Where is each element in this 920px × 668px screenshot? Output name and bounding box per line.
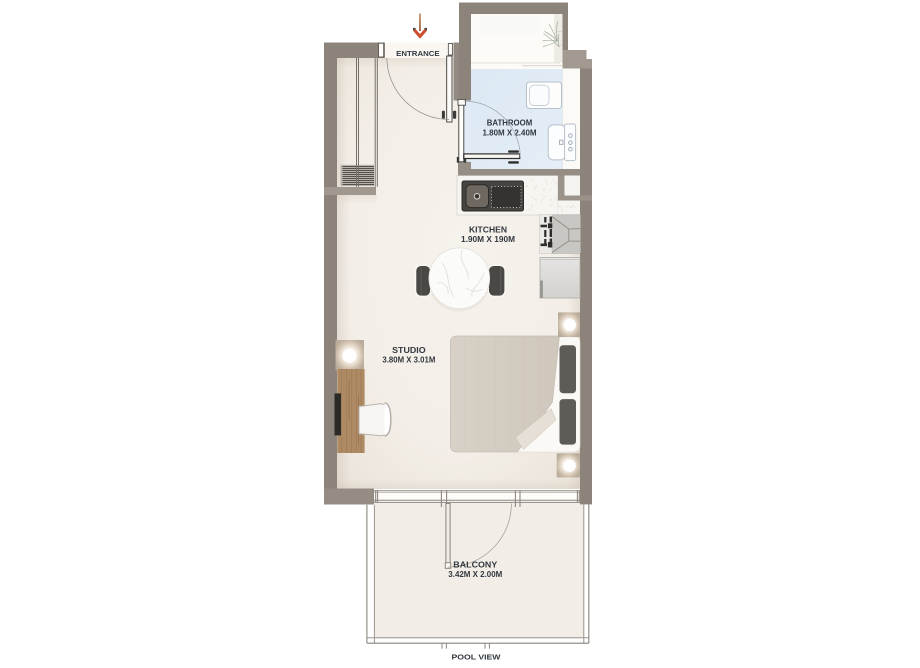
svg-text:POOL VIEW: POOL VIEW <box>452 653 502 662</box>
svg-text:BALCONY: BALCONY <box>453 560 497 570</box>
svg-text:3.80M X 3.01M: 3.80M X 3.01M <box>382 356 435 365</box>
svg-text:ENTRANCE: ENTRANCE <box>396 49 440 58</box>
svg-text:1.80M X 2.40M: 1.80M X 2.40M <box>483 129 537 138</box>
svg-text:3.42M X 2.00M: 3.42M X 2.00M <box>448 570 502 579</box>
svg-text:KITCHEN: KITCHEN <box>469 224 507 234</box>
svg-text:BATHROOM: BATHROOM <box>487 117 533 127</box>
svg-text:1.90M X 190M: 1.90M X 190M <box>461 235 515 244</box>
svg-text:STUDIO: STUDIO <box>392 345 426 355</box>
